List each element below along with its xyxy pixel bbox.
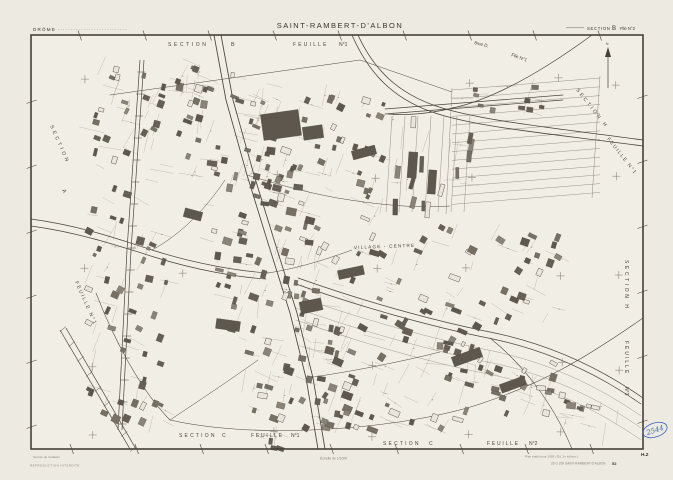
east-feuille-label: FEUILLE xyxy=(623,341,629,375)
cadastral-map-sheet: DRÔME SAINT-RAMBERT-D'ALBON SECTION B Fl… xyxy=(0,0,673,480)
service-line1: Service du Cadastre xyxy=(33,455,61,459)
south2-feuille-num: N°2 xyxy=(529,441,538,447)
south1-section-letter: C xyxy=(222,433,226,439)
top-section-word: SECTION xyxy=(168,42,208,48)
east-num-label: N°3 xyxy=(623,387,629,396)
east-section-label: SECTION H xyxy=(623,260,629,311)
south1-feuille-word: FEUILLE xyxy=(251,433,284,439)
reference-number: 52 xyxy=(612,461,617,466)
sheet-ref-folio: Flle N°2 xyxy=(620,26,636,31)
south1-feuille-num: N°1 xyxy=(291,433,300,439)
south1-section-word: SECTION xyxy=(179,433,217,439)
sheet-ref-letter: B xyxy=(612,26,616,32)
top-section-letter: B xyxy=(231,42,235,48)
south2-section-letter: C xyxy=(429,441,433,447)
service-line2: REPRODUCTION INTERDITE xyxy=(30,464,80,468)
department-label: DRÔME xyxy=(33,26,56,32)
edition-note: Plan établi pour 1955 ( Éd. 2e édition ) xyxy=(525,454,578,459)
sheet-ref-section: SECTION xyxy=(587,26,611,31)
scale-label: Échelle de 1/1000 xyxy=(320,456,347,461)
south2-feuille-word: FEUILLE xyxy=(487,441,520,447)
reference-label: 26 O 269 SAINT-RAMBERT-D'ALBON xyxy=(551,462,606,466)
corner-sheet-code: H.2 xyxy=(641,452,649,458)
map-canvas: DRÔME SAINT-RAMBERT-D'ALBON SECTION B Fl… xyxy=(0,0,673,480)
top-feuille-num: N°1 xyxy=(339,42,348,48)
south2-section-word: SECTION xyxy=(383,441,421,447)
top-feuille-word: FEUILLE xyxy=(293,42,329,48)
page-title: SAINT-RAMBERT-D'ALBON xyxy=(277,21,404,30)
